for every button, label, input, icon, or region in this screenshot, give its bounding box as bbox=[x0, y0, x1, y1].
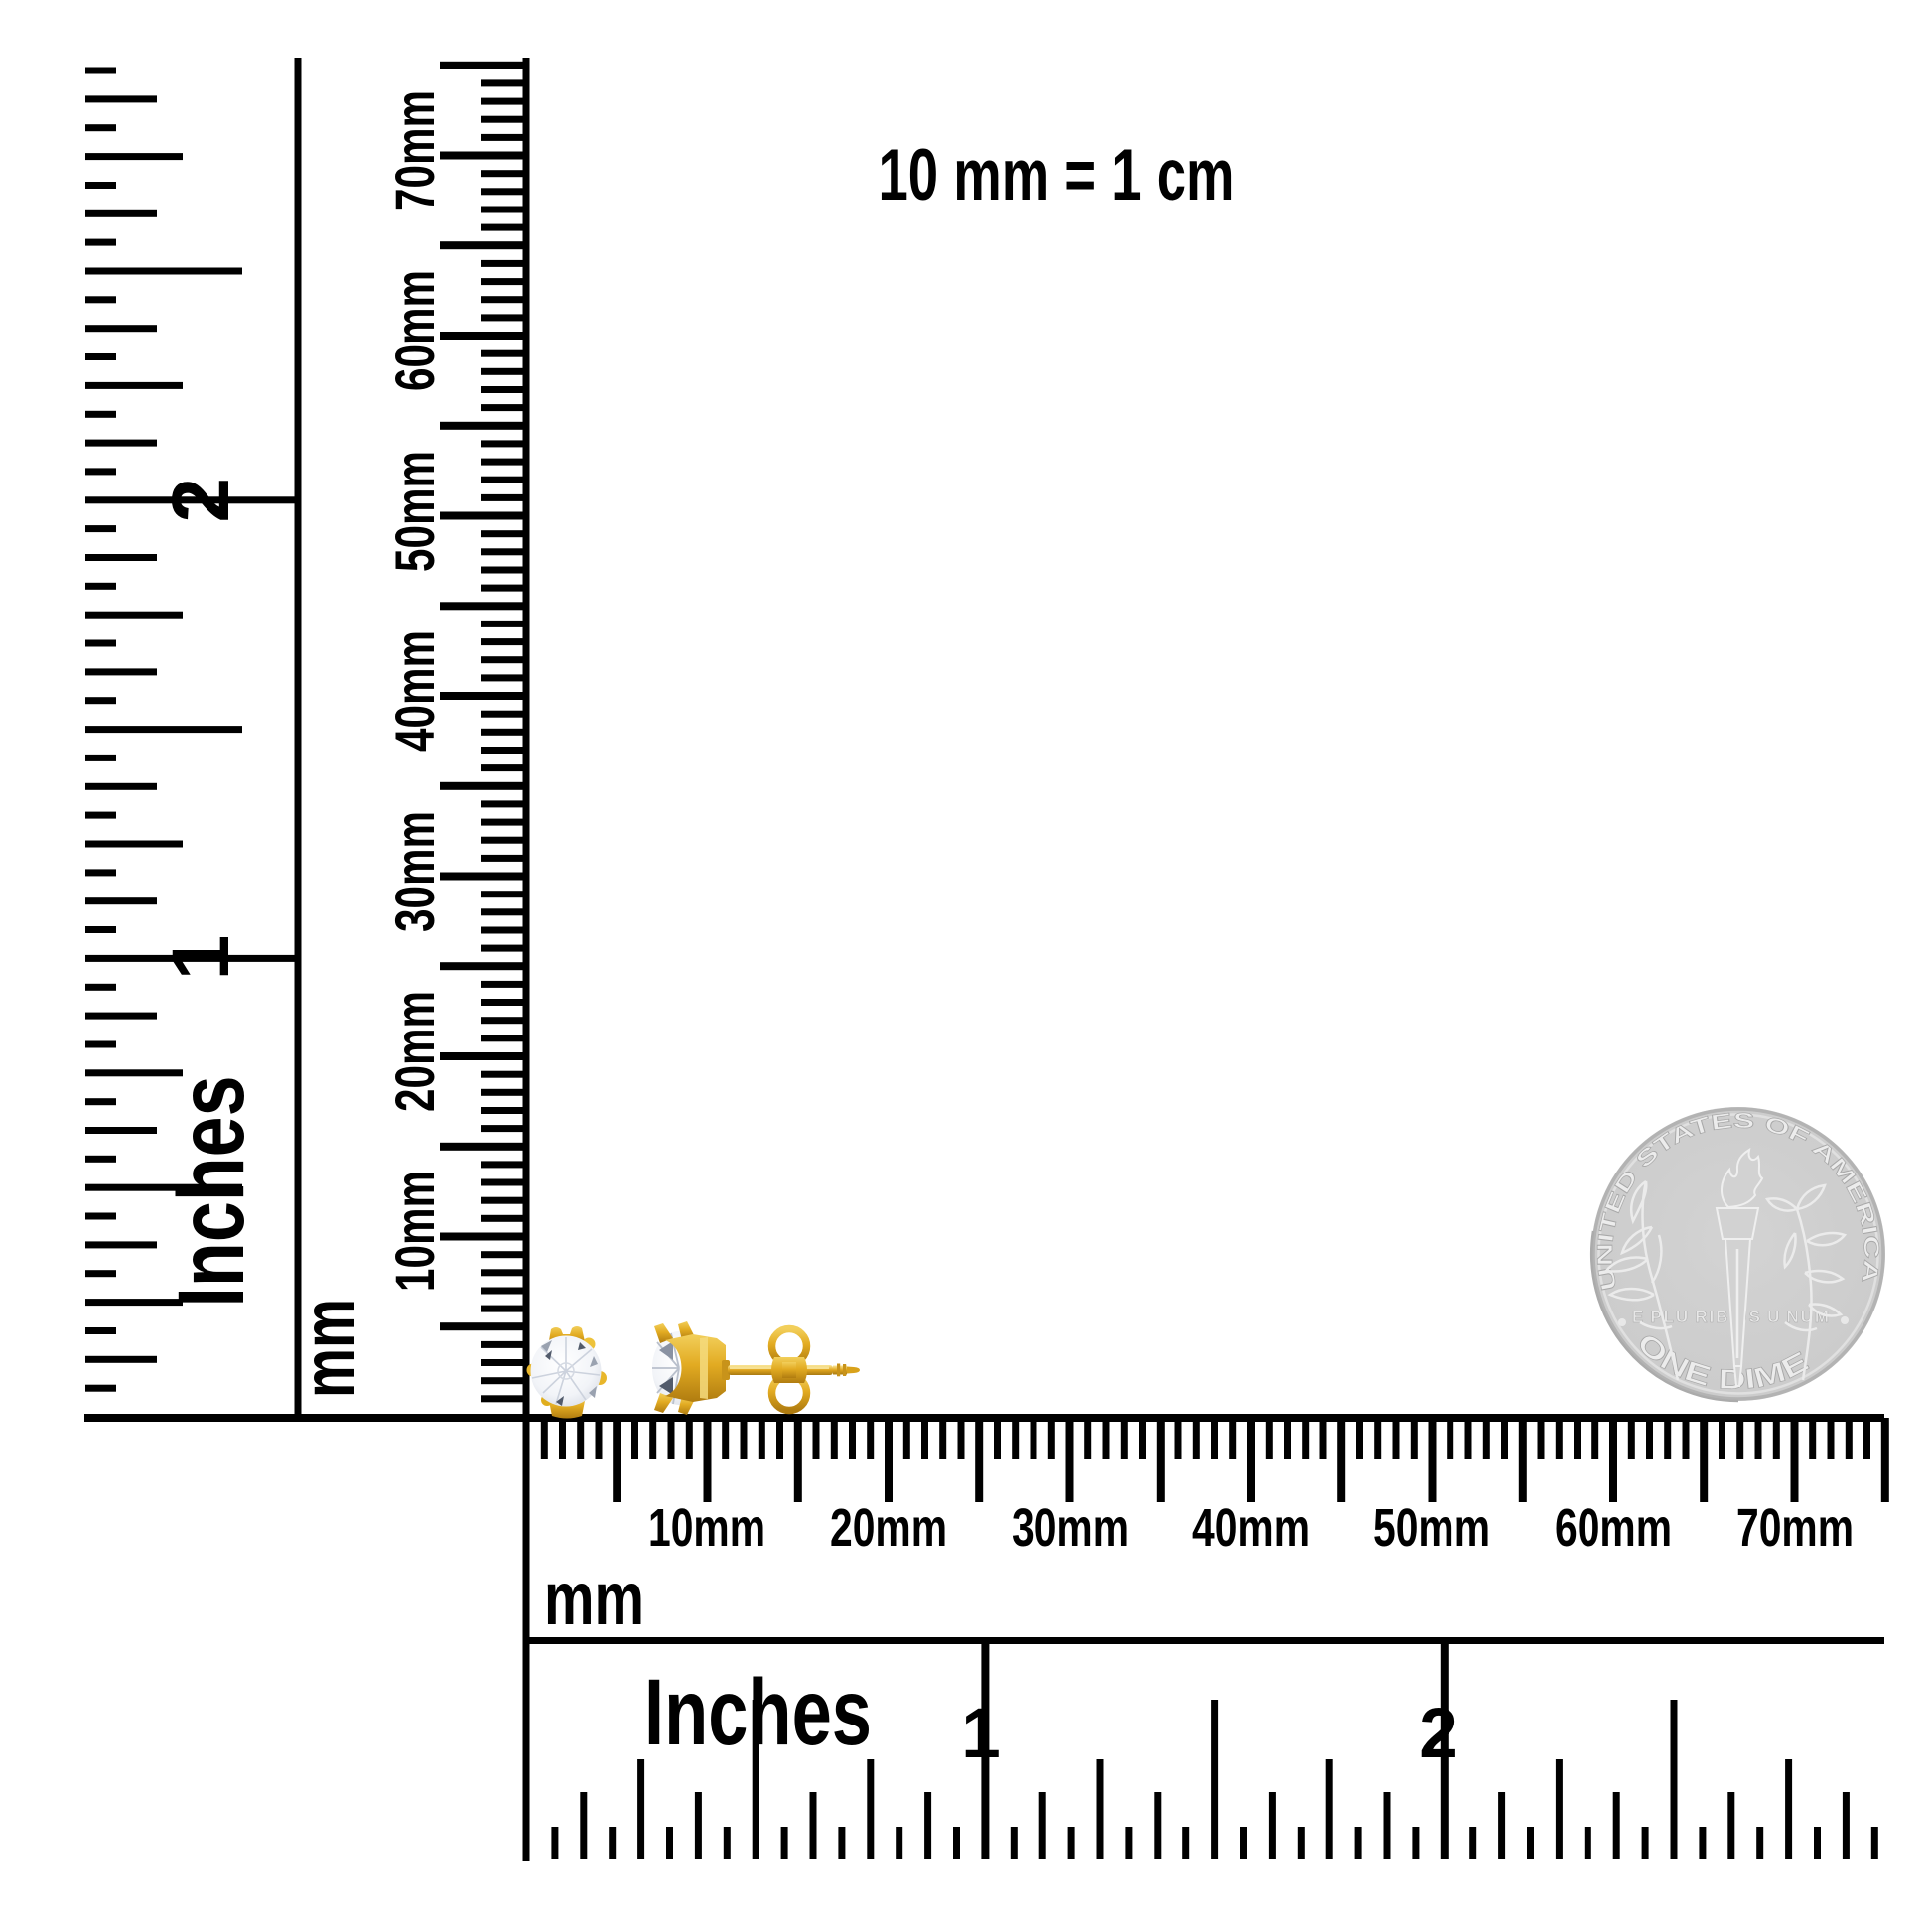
svg-text:40mm: 40mm bbox=[1192, 1498, 1310, 1558]
svg-text:40mm: 40mm bbox=[383, 630, 446, 752]
svg-text:50mm: 50mm bbox=[1373, 1498, 1490, 1558]
svg-text:70mm: 70mm bbox=[383, 90, 446, 211]
svg-text:Inches: Inches bbox=[159, 1076, 264, 1308]
svg-text:Inches: Inches bbox=[644, 1660, 872, 1765]
svg-text:10mm: 10mm bbox=[648, 1498, 765, 1558]
svg-text:1: 1 bbox=[156, 935, 246, 981]
svg-text:10 mm = 1 cm: 10 mm = 1 cm bbox=[879, 135, 1235, 215]
svg-text:20mm: 20mm bbox=[830, 1498, 947, 1558]
svg-text:20mm: 20mm bbox=[383, 991, 446, 1112]
svg-text:70mm: 70mm bbox=[1736, 1498, 1854, 1558]
svg-text:60mm: 60mm bbox=[1555, 1498, 1672, 1558]
svg-text:mm: mm bbox=[544, 1557, 644, 1641]
svg-text:50mm: 50mm bbox=[383, 451, 446, 572]
svg-text:2: 2 bbox=[1419, 1695, 1458, 1773]
svg-text:30mm: 30mm bbox=[383, 811, 446, 932]
svg-text:1: 1 bbox=[961, 1695, 1001, 1773]
svg-text:60mm: 60mm bbox=[383, 270, 446, 391]
svg-text:10mm: 10mm bbox=[383, 1171, 446, 1292]
svg-text:30mm: 30mm bbox=[1012, 1498, 1129, 1558]
svg-text:mm: mm bbox=[287, 1299, 371, 1398]
svg-text:2: 2 bbox=[156, 478, 246, 523]
